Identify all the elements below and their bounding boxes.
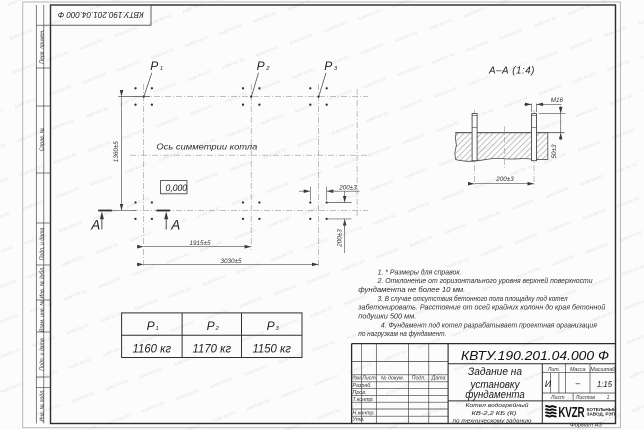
- svg-text:4. Фундамент под котел разраб: 4. Фундамент под котел разрабатывает про…: [381, 320, 597, 329]
- svg-text:Подп.: Подп.: [412, 376, 426, 382]
- svg-text:КВ-2,2 КБ (К): КВ-2,2 КБ (К): [472, 411, 517, 417]
- svg-text:KVZR: KVZR: [558, 404, 584, 420]
- svg-text:Листов: Листов: [575, 395, 596, 401]
- svg-text:КВТУ.190.201.04.000 Ф: КВТУ.190.201.04.000 Ф: [57, 10, 144, 19]
- svg-text:200±3: 200±3: [336, 229, 343, 248]
- svg-text:Лист: Лист: [361, 376, 376, 382]
- svg-text:по техническому заданию: по техническому заданию: [453, 418, 533, 424]
- svg-text:Масса: Масса: [570, 367, 586, 373]
- svg-text:А–А (1:4): А–А (1:4): [488, 65, 535, 76]
- svg-text:забетонировать. Расстояние от: забетонировать. Расстояние от осей крайн…: [357, 303, 606, 312]
- svg-text:№ докум.: № докум.: [381, 376, 404, 382]
- svg-text:1. * Размеры для справок.: 1. * Размеры для справок.: [378, 267, 462, 276]
- svg-text:Лит.: Лит.: [547, 367, 560, 373]
- svg-text:фундамента: фундамента: [465, 389, 525, 401]
- svg-text:Разраб.: Разраб.: [353, 383, 372, 389]
- svg-text:1915±5: 1915±5: [190, 240, 211, 247]
- svg-text:Т.контр.: Т.контр.: [353, 397, 374, 403]
- svg-text:А: А: [170, 218, 180, 233]
- svg-text:Формат А3: Формат А3: [570, 423, 602, 429]
- svg-text:Перв. примен.: Перв. примен.: [39, 29, 45, 63]
- svg-text:1: 1: [607, 395, 610, 401]
- svg-text:фундамента не более 10 мм.: фундамента не более 10 мм.: [358, 285, 465, 294]
- svg-text:Дата: Дата: [431, 376, 446, 382]
- svg-text:Справ. №: Справ. №: [39, 127, 45, 151]
- svg-text:1:15: 1:15: [597, 380, 613, 389]
- svg-text:ЗАВОД, РЭП: ЗАВОД, РЭП: [587, 411, 615, 416]
- svg-text:Утв.: Утв.: [353, 417, 365, 423]
- svg-text:Подп. и дата: Подп. и дата: [39, 338, 45, 371]
- svg-text:1360±5: 1360±5: [113, 141, 120, 162]
- svg-text:Взам. инв. №: Взам. инв. №: [39, 300, 45, 332]
- svg-text:50±3: 50±3: [551, 144, 558, 158]
- svg-text:по нагрузкам на фундамент.: по нагрузкам на фундамент.: [358, 329, 446, 338]
- svg-text:3030±5: 3030±5: [221, 258, 242, 265]
- svg-text:И: И: [545, 379, 552, 389]
- svg-text:Масштаб: Масштаб: [590, 367, 616, 373]
- svg-text:Н.контр.: Н.контр.: [353, 410, 375, 416]
- svg-text:КВТУ.190.201.04.000 Ф: КВТУ.190.201.04.000 Ф: [461, 348, 609, 363]
- svg-text:1160 кг: 1160 кг: [133, 342, 172, 356]
- svg-text:0,000: 0,000: [166, 183, 188, 194]
- svg-text:Ось симметрии котла: Ось симметрии котла: [156, 141, 257, 151]
- svg-text:Пров.: Пров.: [353, 390, 367, 396]
- svg-text:Инв. № подл.: Инв. № подл.: [39, 389, 45, 421]
- svg-text:Изм.: Изм.: [351, 376, 362, 382]
- svg-text:Инв. № дубл.: Инв. № дубл.: [39, 267, 45, 299]
- svg-text:Подп. и дата: Подп. и дата: [39, 228, 45, 261]
- svg-text:1170 кг: 1170 кг: [193, 342, 232, 356]
- svg-text:подушки 500 мм.: подушки 500 мм.: [358, 311, 416, 320]
- svg-text:Котел водогрейный: Котел водогрейный: [466, 402, 530, 409]
- svg-text:–: –: [575, 379, 581, 388]
- svg-text:Лист: Лист: [550, 395, 565, 401]
- svg-text:А: А: [90, 218, 100, 233]
- svg-text:2. Отклонение от горизонтальн: 2. Отклонение от горизонтального уровня …: [377, 276, 594, 285]
- svg-text:1150 кг: 1150 кг: [252, 342, 291, 356]
- svg-text:Задание на: Задание на: [468, 366, 522, 378]
- svg-text:3. В случае отсутствия бетонн: 3. В случае отсутствия бетонного пола пл…: [378, 294, 569, 303]
- svg-text:200±3: 200±3: [495, 176, 514, 183]
- svg-text:200±3: 200±3: [338, 185, 357, 192]
- svg-text:М16: М16: [551, 97, 564, 104]
